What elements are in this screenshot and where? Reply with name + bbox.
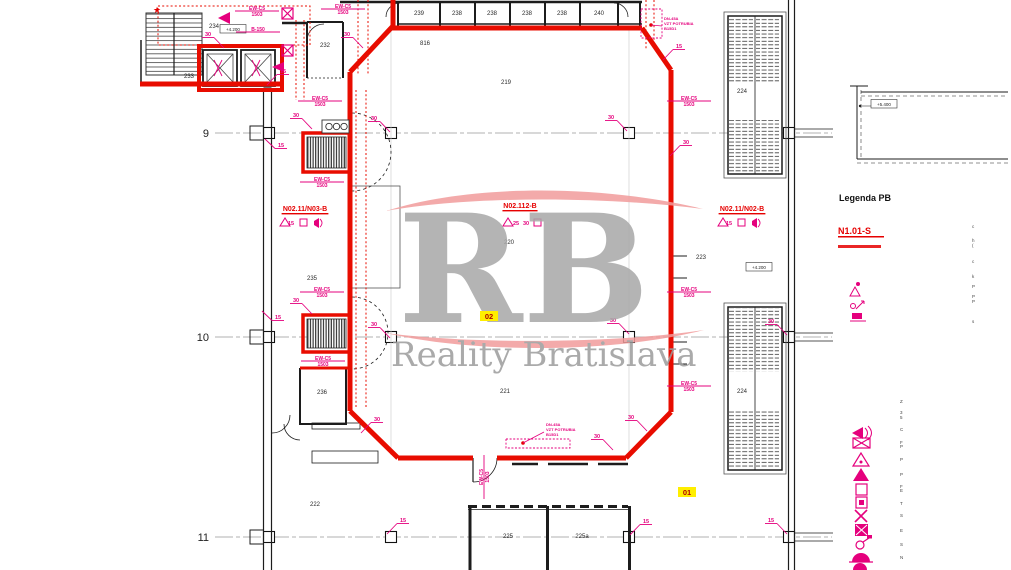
marker-leader bbox=[637, 421, 647, 432]
legend-fragment: P bbox=[900, 444, 903, 449]
rating-tag-text: 1503 bbox=[316, 183, 327, 189]
fire-compartment-label: N02.11/N02-B bbox=[720, 206, 764, 213]
room-label-239: 239 bbox=[414, 11, 425, 17]
room-label-234: 234 bbox=[209, 24, 220, 30]
legend-symbol-hydrant bbox=[849, 553, 873, 562]
compartment-underline bbox=[719, 213, 766, 214]
legend-fragment: 5 bbox=[900, 415, 903, 420]
watermark-name: Reality Bratislava bbox=[391, 335, 697, 375]
escalator-lower-224 bbox=[724, 303, 786, 474]
legend-description-fragments: ch(ckPPPsZ35CFPPPFETSESN bbox=[900, 224, 975, 560]
rating-tag: EW-C51503 bbox=[479, 455, 491, 499]
horn-icon bbox=[314, 218, 319, 228]
door-arc-corridor bbox=[272, 415, 290, 433]
watermark-rb: RB bbox=[398, 182, 649, 358]
legend-symbol-partial bbox=[853, 563, 867, 570]
canopy-outline bbox=[850, 86, 1008, 163]
rating-tag-text: 1503 bbox=[251, 12, 262, 18]
rating-tag: EW-C51503 bbox=[667, 96, 711, 108]
escalator-upper-224 bbox=[724, 12, 786, 178]
room-label-238: 238 bbox=[522, 11, 533, 17]
room-label-238: 238 bbox=[557, 11, 568, 17]
legend-symbol-x bbox=[855, 510, 867, 522]
legend-symbol-triangle-dot bbox=[853, 453, 869, 466]
rating-tag: EW-C51503 bbox=[235, 6, 279, 18]
fire-rating-marker: 15 bbox=[726, 221, 732, 227]
legend-symbol-square-mark bbox=[856, 497, 867, 508]
column-marker bbox=[386, 532, 397, 543]
room-label-225a: 225a bbox=[575, 534, 589, 540]
door-arc-room240 bbox=[614, 3, 628, 17]
column-marker bbox=[264, 332, 275, 343]
grid-row-label: 9 bbox=[203, 128, 209, 140]
floorplan-page: 91011 bbox=[0, 0, 1011, 570]
legend-symbol-arrow bbox=[851, 301, 865, 309]
wall-column-brackets bbox=[250, 126, 264, 544]
room-label-240: 240 bbox=[594, 11, 605, 17]
fire-compartment-label: N02.11/N03-B bbox=[283, 206, 327, 213]
rating-tag: EW-C51503 bbox=[667, 287, 711, 299]
legend-symbol-filled-square-x bbox=[855, 524, 868, 536]
room-232-walls bbox=[282, 22, 343, 78]
compartment-icons-left bbox=[280, 218, 322, 228]
legend-fragment: Z bbox=[900, 399, 903, 404]
marker-leader bbox=[777, 524, 787, 535]
watermark: RB Reality Bratislava bbox=[386, 182, 704, 375]
legend-symbol-scale bbox=[850, 282, 860, 296]
column-marker bbox=[264, 128, 275, 139]
column-marker bbox=[264, 532, 275, 543]
right-boundary-wall bbox=[789, 0, 834, 570]
fire-star-icon: ★ bbox=[153, 5, 161, 15]
fire-rating-marker: 15 bbox=[288, 221, 294, 227]
highlight-label-01: 01 bbox=[683, 488, 691, 497]
rating-tag: EW-C51503 bbox=[300, 177, 344, 189]
legend-fragment: c bbox=[972, 259, 975, 264]
legend-fragment: E bbox=[900, 488, 903, 493]
floorplan-drawing: 91011 bbox=[0, 0, 1011, 570]
horn-icon bbox=[752, 218, 757, 228]
legend-fragment: E bbox=[900, 528, 903, 533]
legend-fragment: P bbox=[900, 457, 903, 462]
compartment-underline bbox=[282, 213, 329, 214]
room-label-223: 223 bbox=[696, 255, 707, 261]
legend-fragment: C bbox=[900, 427, 904, 432]
rating-tag-text: 1503 bbox=[683, 102, 694, 108]
legend-fragment: P bbox=[972, 284, 975, 289]
rating-tag-text: 1503 bbox=[683, 293, 694, 299]
legend-fragment: c bbox=[972, 224, 975, 229]
marker-leader bbox=[663, 50, 673, 61]
room-label-238: 238 bbox=[487, 11, 498, 17]
legend-symbol-extinguisher bbox=[856, 535, 872, 549]
legend: Legenda PB N1.01-S bbox=[838, 193, 975, 570]
legend-symbol-box bbox=[850, 313, 866, 321]
elevation-badge: +4.200 bbox=[752, 265, 766, 270]
rating-tag-text: 1503 bbox=[485, 471, 491, 482]
duct-dashed-box bbox=[506, 439, 570, 448]
legend-fragment: S bbox=[900, 542, 903, 547]
grid-row-label: 10 bbox=[197, 332, 209, 344]
rating-tag: EW-C51503 bbox=[300, 287, 344, 299]
elevation-badge: +4.200 bbox=[226, 27, 240, 32]
legend-symbol-square bbox=[856, 484, 867, 495]
room-label-221: 221 bbox=[500, 389, 511, 395]
room-label-816: 816 bbox=[420, 41, 431, 47]
rating-tag-text: 1503 bbox=[683, 387, 694, 393]
legend-symbol-crossed-rect bbox=[853, 438, 870, 448]
marker-leader bbox=[617, 121, 627, 132]
room-label-232: 232 bbox=[320, 43, 331, 49]
room-label-222: 222 bbox=[310, 502, 321, 508]
room-label-224: 224 bbox=[737, 389, 748, 395]
legend-fragment: P bbox=[972, 299, 975, 304]
bottom-rooms-225 bbox=[468, 506, 630, 570]
direction-arrow-icon bbox=[218, 12, 230, 24]
elevation-badge: +5.400 bbox=[877, 102, 891, 107]
legend-compartment-label: N1.01-S bbox=[838, 226, 871, 236]
duct-leader bbox=[523, 432, 544, 443]
crossed-box-icon bbox=[282, 8, 293, 19]
marker-leader bbox=[302, 304, 312, 315]
marker-leader bbox=[302, 119, 312, 130]
legend-caption-text-illegible bbox=[838, 245, 881, 248]
legend-title: Legenda PB bbox=[839, 193, 892, 203]
duct-leader bbox=[651, 25, 662, 26]
rating-tag-text: B-150 bbox=[251, 27, 265, 33]
legend-symbol-triangle-solid bbox=[853, 468, 869, 481]
room-label-238: 238 bbox=[452, 11, 463, 17]
room-label-224: 224 bbox=[737, 89, 748, 95]
room-label-225: 225 bbox=[503, 534, 514, 540]
highlight-label-02: 02 bbox=[485, 312, 493, 321]
marker-leader bbox=[265, 139, 275, 149]
travelator-clearance bbox=[352, 113, 400, 369]
grid-row-label: 11 bbox=[198, 532, 209, 544]
legend-fragment: P bbox=[900, 472, 903, 477]
legend-fragment: T bbox=[900, 501, 903, 506]
legend-fragment: k bbox=[972, 274, 975, 279]
legend-fragment: s bbox=[972, 319, 975, 324]
room-label-236: 236 bbox=[317, 390, 328, 396]
rating-tag-text: 1503 bbox=[314, 102, 325, 108]
compartment-icons-right bbox=[718, 218, 760, 228]
left-corridor-wall bbox=[250, 88, 290, 570]
rating-tag: EW-C51503 bbox=[301, 356, 345, 368]
legend-fragment: S bbox=[900, 513, 903, 518]
rating-tag-text: 1503 bbox=[316, 293, 327, 299]
legend-fragment: ( bbox=[972, 243, 974, 248]
marker-leader bbox=[603, 440, 613, 451]
duct-label: B15D1 bbox=[546, 432, 559, 437]
rating-tag: EW-C51503 bbox=[667, 381, 711, 393]
rating-tag-text: 1503 bbox=[317, 362, 328, 368]
rating-tag-text: 1503 bbox=[337, 10, 348, 16]
elevator-shafts bbox=[203, 50, 275, 86]
room-label-219: 219 bbox=[501, 80, 512, 86]
room-label-233: 233 bbox=[184, 74, 195, 80]
rating-tag: EW-C51503 bbox=[298, 96, 342, 108]
duct-label: B15D1 bbox=[664, 26, 677, 31]
legend-fragment: N bbox=[900, 555, 903, 560]
room-label-235: 235 bbox=[307, 276, 318, 282]
